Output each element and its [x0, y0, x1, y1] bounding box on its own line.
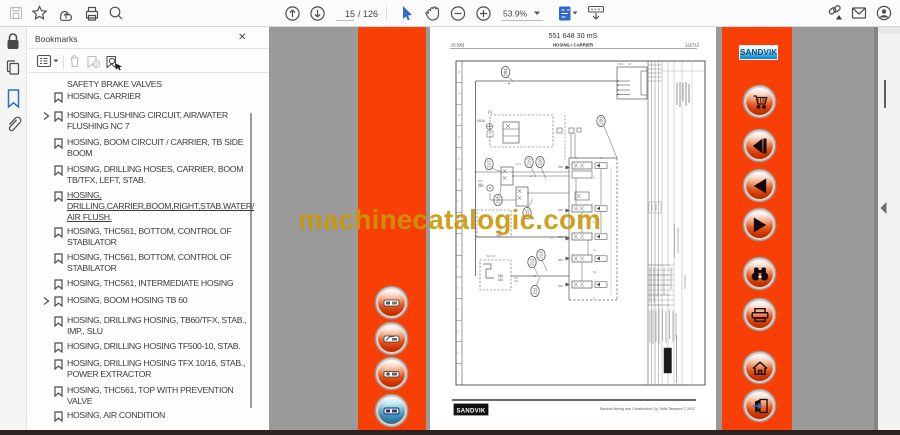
svg-text:233: 233: [514, 279, 519, 283]
svg-text:217A: 217A: [515, 162, 521, 166]
svg-text:B1: B1: [593, 270, 597, 274]
svg-text:218: 218: [496, 196, 501, 204]
svg-text:122712: 122712: [685, 43, 700, 48]
svg-text:550: 550: [558, 165, 563, 169]
svg-text:11: 11: [457, 156, 460, 160]
svg-text:53.9%: 53.9%: [503, 9, 528, 19]
svg-text:101: 101: [478, 182, 483, 186]
svg-text:15 (95): 15 (95): [451, 43, 465, 48]
svg-text:2: 2: [457, 351, 459, 355]
svg-text:13: 13: [457, 113, 461, 117]
svg-text:212: 212: [530, 258, 535, 266]
svg-text:3: 3: [457, 329, 459, 333]
svg-text:6: 6: [457, 264, 459, 268]
svg-text:A: A: [593, 176, 595, 180]
svg-text:550: 550: [558, 284, 563, 288]
svg-text:211: 211: [533, 287, 538, 295]
svg-text:12: 12: [457, 135, 461, 139]
svg-text:1: 1: [457, 372, 459, 376]
svg-text:219: 219: [527, 158, 532, 166]
svg-text:[1]: [1]: [488, 110, 492, 114]
svg-text:18: 18: [550, 236, 553, 240]
svg-text:15: 15: [457, 70, 461, 74]
svg-text:15: 15: [345, 9, 355, 19]
svg-text:550 104: 550 104: [486, 254, 496, 258]
svg-text:500A: 500A: [477, 119, 486, 123]
svg-text:Sandvik Mining and Constructio: Sandvik Mining and Construction Oy, Dril…: [600, 407, 695, 411]
svg-text:4: 4: [457, 308, 459, 312]
svg-text:213: 213: [539, 251, 544, 259]
svg-text:217: 217: [487, 160, 492, 168]
svg-text:14: 14: [457, 92, 461, 96]
svg-text:216: 216: [538, 158, 543, 166]
svg-text:48: 48: [628, 62, 631, 66]
svg-text:201: 201: [503, 68, 508, 76]
svg-text:HOSING / CARRIER: HOSING / CARRIER: [553, 43, 594, 48]
svg-text:7: 7: [457, 243, 459, 247]
svg-text:10: 10: [457, 178, 461, 182]
svg-text:/ 126: / 126: [358, 9, 378, 19]
svg-text:220: 220: [599, 117, 604, 125]
svg-text:SANDVIK: SANDVIK: [456, 409, 485, 415]
svg-text:9: 9: [457, 200, 459, 204]
svg-text:550: 550: [558, 258, 563, 262]
svg-text:P: P: [593, 296, 595, 300]
svg-text:552: 552: [498, 278, 504, 282]
svg-text:551 648 30 mS: 551 648 30 mS: [549, 31, 598, 40]
svg-text:5516: 5516: [618, 62, 624, 66]
svg-text:5: 5: [457, 286, 459, 290]
svg-text:A1: A1: [593, 248, 597, 252]
